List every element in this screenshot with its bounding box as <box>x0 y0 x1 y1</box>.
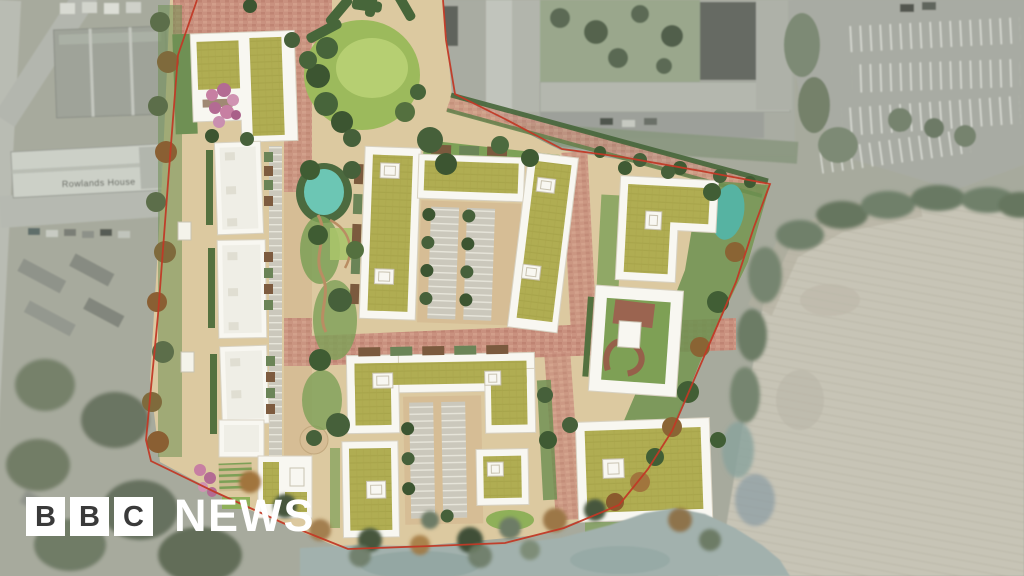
aerial-photo-ploughed-field <box>718 185 1024 576</box>
news-image-masterplan: Rowlands House <box>0 0 1024 576</box>
bbc-logo-block-b1: B <box>26 497 65 536</box>
bbc-news-logo: B B C NEWS <box>26 490 315 542</box>
courtyard-garden-building <box>581 285 683 397</box>
bbc-news-wordmark: NEWS <box>174 490 315 542</box>
rowlands-house-building <box>11 144 165 198</box>
bbc-logo-block-c: C <box>114 497 153 536</box>
apartment-block-central-u <box>349 142 579 333</box>
aerial-photo-car-park <box>784 0 1024 190</box>
bbc-logo-block-b2: B <box>70 497 109 536</box>
